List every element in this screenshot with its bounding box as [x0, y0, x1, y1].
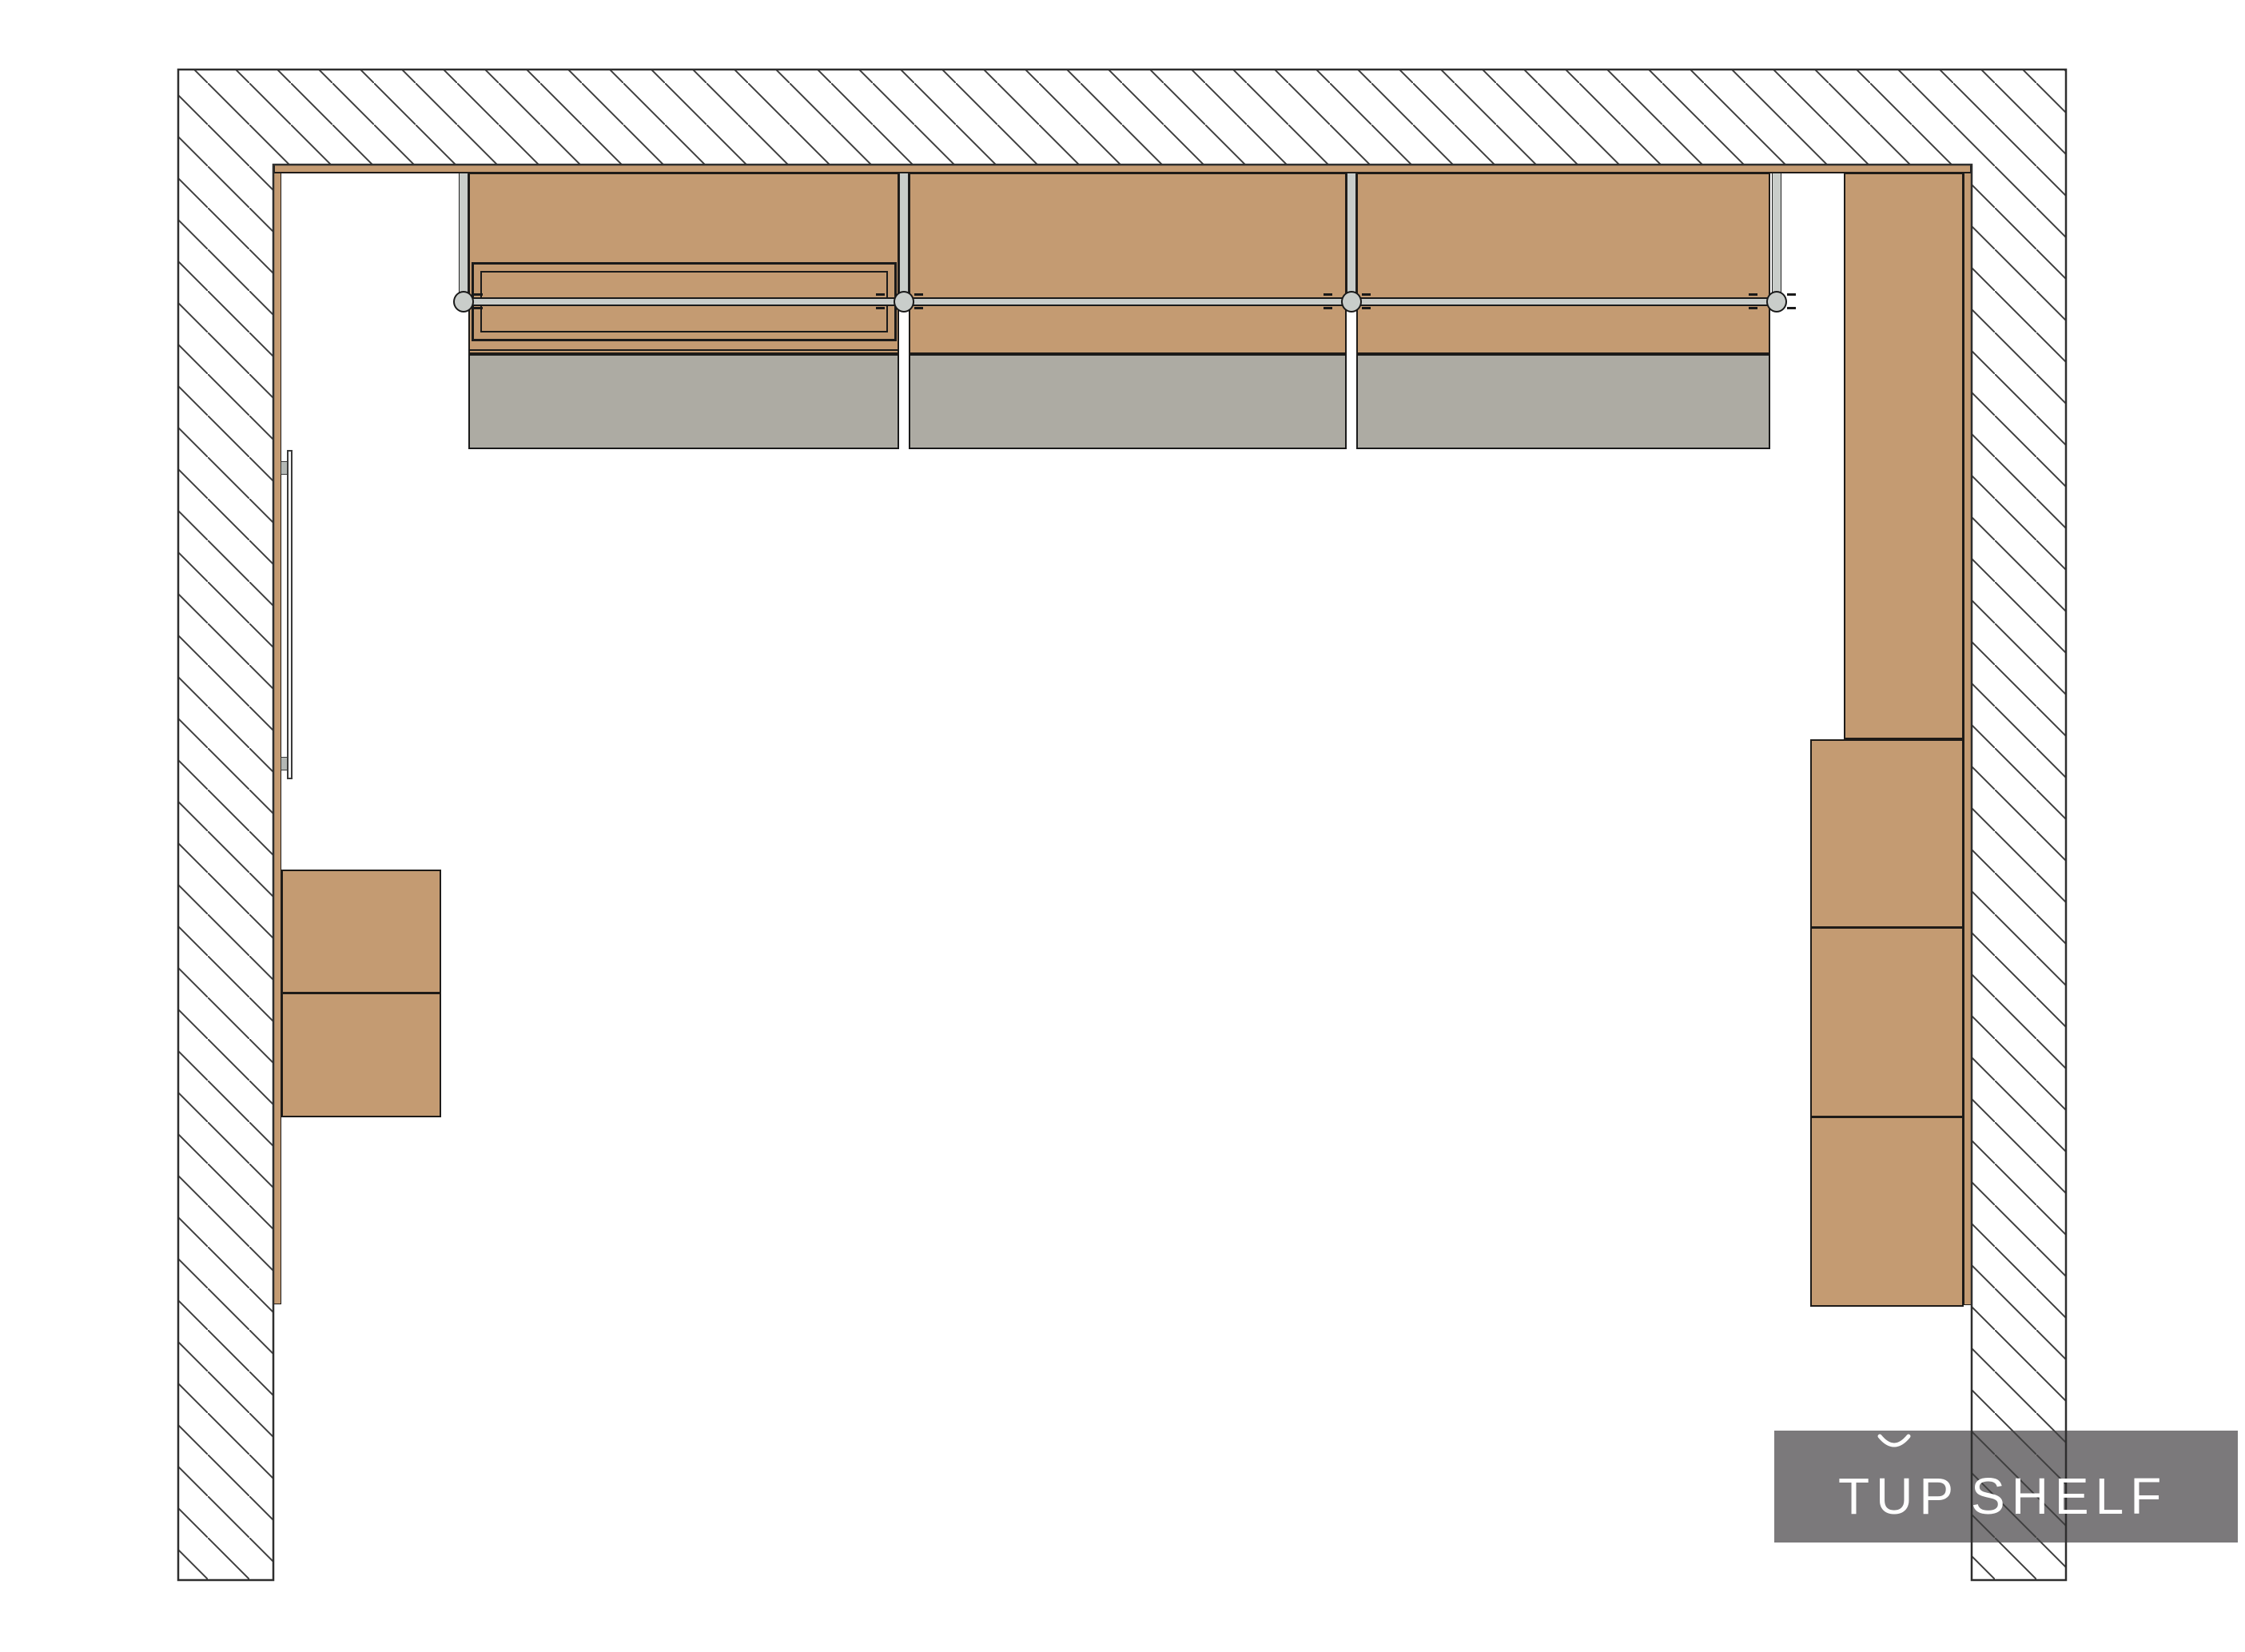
wardrobe-bay-3-hanging-area: [1356, 173, 1770, 354]
rod-bracket-pin: [1362, 307, 1371, 309]
rod-bracket-pin: [474, 293, 483, 296]
breve-icon: [1877, 1433, 1912, 1451]
rod-bracket: [894, 291, 914, 312]
rod-bracket: [1766, 291, 1787, 312]
drawer-box: [281, 870, 441, 993]
divider-panel: [1772, 173, 1781, 293]
wordmark-letter-o-base: U: [1876, 1467, 1919, 1525]
mirror-plate: [287, 450, 293, 779]
right-wall-panel-strip: [1964, 173, 1972, 1305]
rod-bracket-pin: [1324, 307, 1332, 309]
rod-bracket-pin: [474, 307, 483, 309]
rod-bracket-pin: [1787, 293, 1796, 296]
divider-panel: [899, 173, 909, 293]
rod-bracket-pin: [1362, 293, 1371, 296]
lower-shelf-block: [468, 354, 899, 449]
divider-panel: [459, 173, 468, 293]
wordmark-letter-t: T: [1838, 1467, 1876, 1525]
bay-1-box-edge-line: [468, 349, 899, 351]
storage-box: [1810, 739, 1964, 928]
rod-bracket-pin: [1749, 293, 1757, 296]
rod-bracket-pin: [876, 293, 885, 296]
rod-bracket: [1341, 291, 1362, 312]
rod-bracket-pin: [1749, 307, 1757, 309]
wordmark-letter-p: P: [1919, 1467, 1960, 1525]
lower-shelf-block: [1356, 354, 1770, 449]
storage-box: [1810, 1117, 1964, 1307]
rod-bracket-pin: [1324, 293, 1332, 296]
rod-bracket: [453, 291, 474, 312]
drawer-box: [281, 993, 441, 1117]
tall-cabinet-panel: [1844, 173, 1964, 739]
hanging-rod: [464, 297, 1777, 306]
wardrobe-bay-2-hanging-area: [909, 173, 1347, 354]
rod-bracket-pin: [914, 293, 923, 296]
rod-bracket-pin: [876, 307, 885, 309]
rod-bracket-pin: [1787, 307, 1796, 309]
rod-bracket-pin: [914, 307, 923, 309]
left-wall-panel-strip: [273, 173, 281, 1304]
divider-panel: [1347, 173, 1356, 293]
brand-wordmark: TUPSHELF: [1838, 1471, 2167, 1522]
lower-shelf-block: [909, 354, 1347, 449]
storage-box: [1810, 927, 1964, 1117]
wordmark-word-shelf: SHELF: [1971, 1467, 2167, 1525]
closet-plan-canvas: TUPSHELF: [0, 0, 2245, 1652]
